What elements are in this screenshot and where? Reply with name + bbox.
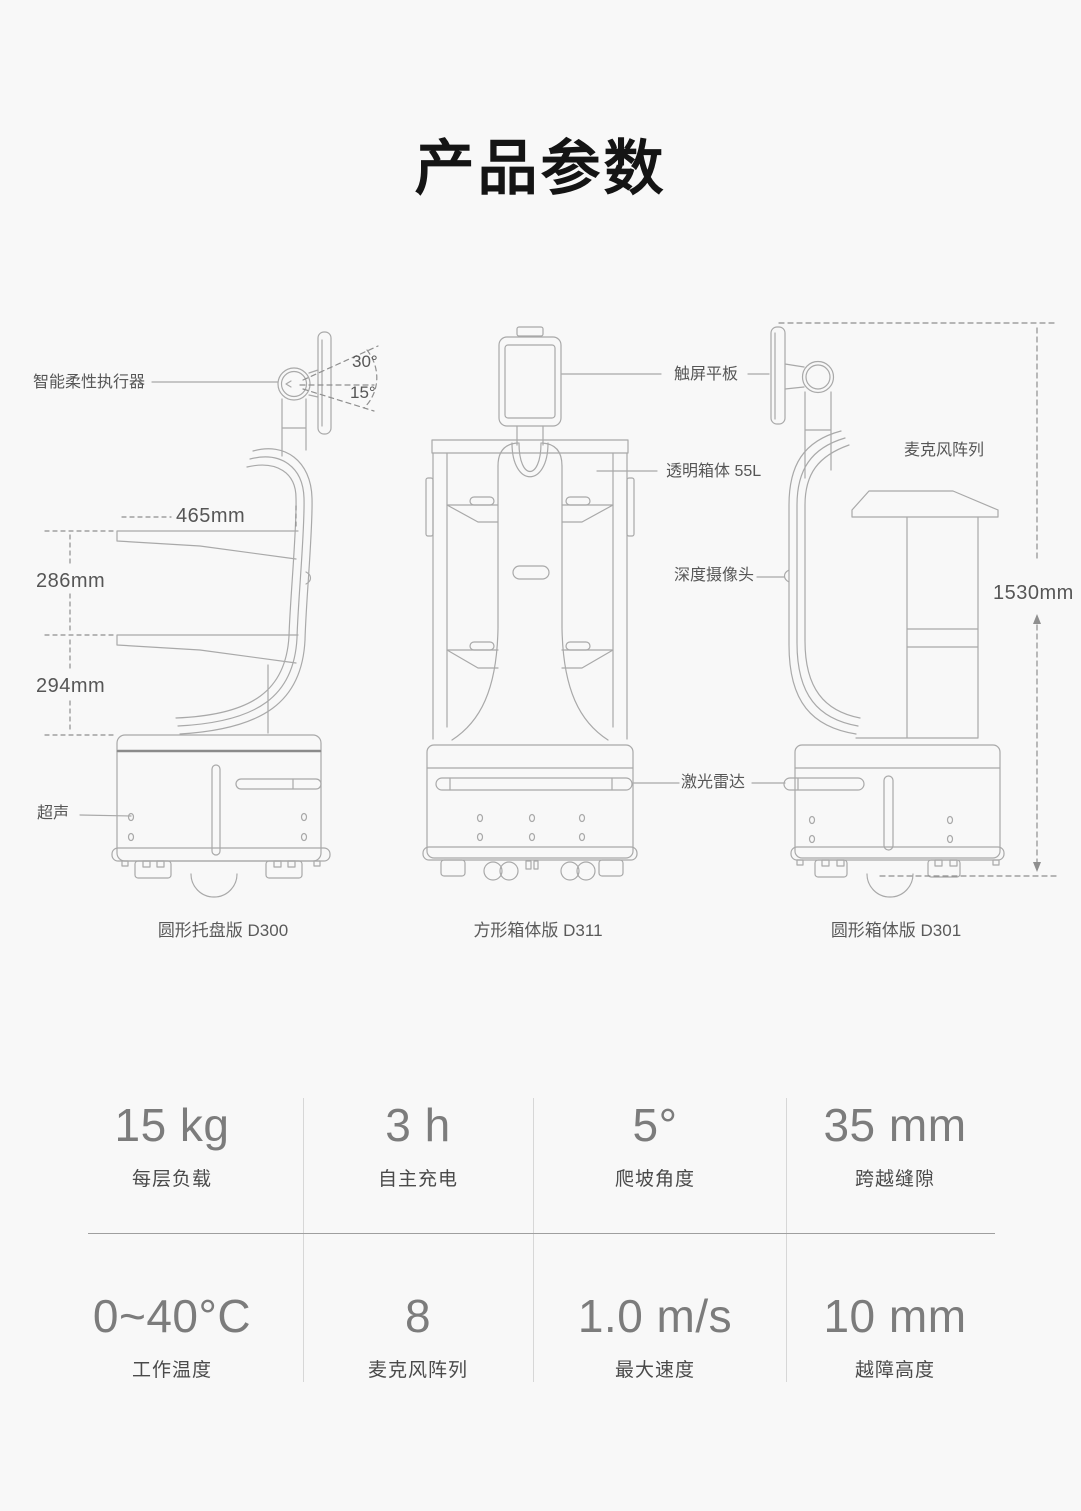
caption-d311: 方形箱体版 D311: [435, 916, 641, 941]
robot-line-drawings: [0, 0, 1081, 1511]
spec-cell-obstacle-height: 10 mm 越障高度: [765, 1291, 1025, 1382]
spec-value: 15 kg: [42, 1100, 302, 1151]
label-transparent-box: 透明箱体 55L: [666, 463, 761, 481]
label-lidar: 激光雷达: [681, 774, 745, 792]
spec-cell-temperature: 0~40°C 工作温度: [42, 1291, 302, 1382]
spec-label: 麦克风阵列: [288, 1355, 548, 1382]
spec-label: 工作温度: [42, 1355, 302, 1382]
robot-d300-drawing: [45, 332, 378, 897]
spec-label: 爬坡角度: [525, 1164, 785, 1191]
product-spec-page: 产品参数: [0, 0, 1081, 1511]
spec-cell-charging: 3 h 自主充电: [288, 1100, 548, 1191]
spec-value: 10 mm: [765, 1291, 1025, 1342]
label-tilt-down-angle: 15°: [350, 384, 376, 403]
caption-d300: 圆形托盘版 D300: [120, 916, 326, 941]
label-total-height: 1530mm: [993, 582, 1074, 604]
spec-cell-max-speed: 1.0 m/s 最大速度: [525, 1291, 785, 1382]
grid-divider-horizontal: [88, 1233, 995, 1234]
spec-value: 8: [288, 1291, 548, 1342]
label-tray-width: 465mm: [176, 505, 245, 527]
spec-cell-gap-crossing: 35 mm 跨越缝隙: [765, 1100, 1025, 1191]
spec-cell-climb-angle: 5° 爬坡角度: [525, 1100, 785, 1191]
label-touch-tablet: 触屏平板: [674, 366, 738, 384]
label-depth-camera: 深度摄像头: [674, 567, 754, 585]
robot-d301-drawing: [771, 323, 1058, 897]
spec-label: 跨越缝隙: [765, 1164, 1025, 1191]
spec-value: 0~40°C: [42, 1291, 302, 1342]
label-ultrasonic: 超声: [37, 805, 69, 823]
spec-label: 每层负载: [42, 1164, 302, 1191]
spec-value: 3 h: [288, 1100, 548, 1151]
label-tilt-up-angle: 30°: [352, 353, 378, 372]
robot-d311-drawing: [423, 327, 785, 880]
spec-value: 5°: [525, 1100, 785, 1151]
spec-label: 自主充电: [288, 1164, 548, 1191]
spec-value: 1.0 m/s: [525, 1291, 785, 1342]
spec-value: 35 mm: [765, 1100, 1025, 1151]
label-flexible-actuator: 智能柔性执行器: [33, 374, 145, 392]
spec-cell-mic-array: 8 麦克风阵列: [288, 1291, 548, 1382]
spec-cell-payload: 15 kg 每层负载: [42, 1100, 302, 1191]
label-shelf-gap-upper: 286mm: [36, 570, 105, 592]
spec-label: 越障高度: [765, 1355, 1025, 1382]
label-shelf-gap-lower: 294mm: [36, 675, 105, 697]
label-mic-array: 麦克风阵列: [904, 442, 984, 460]
spec-label: 最大速度: [525, 1355, 785, 1382]
caption-d301: 圆形箱体版 D301: [793, 916, 999, 941]
